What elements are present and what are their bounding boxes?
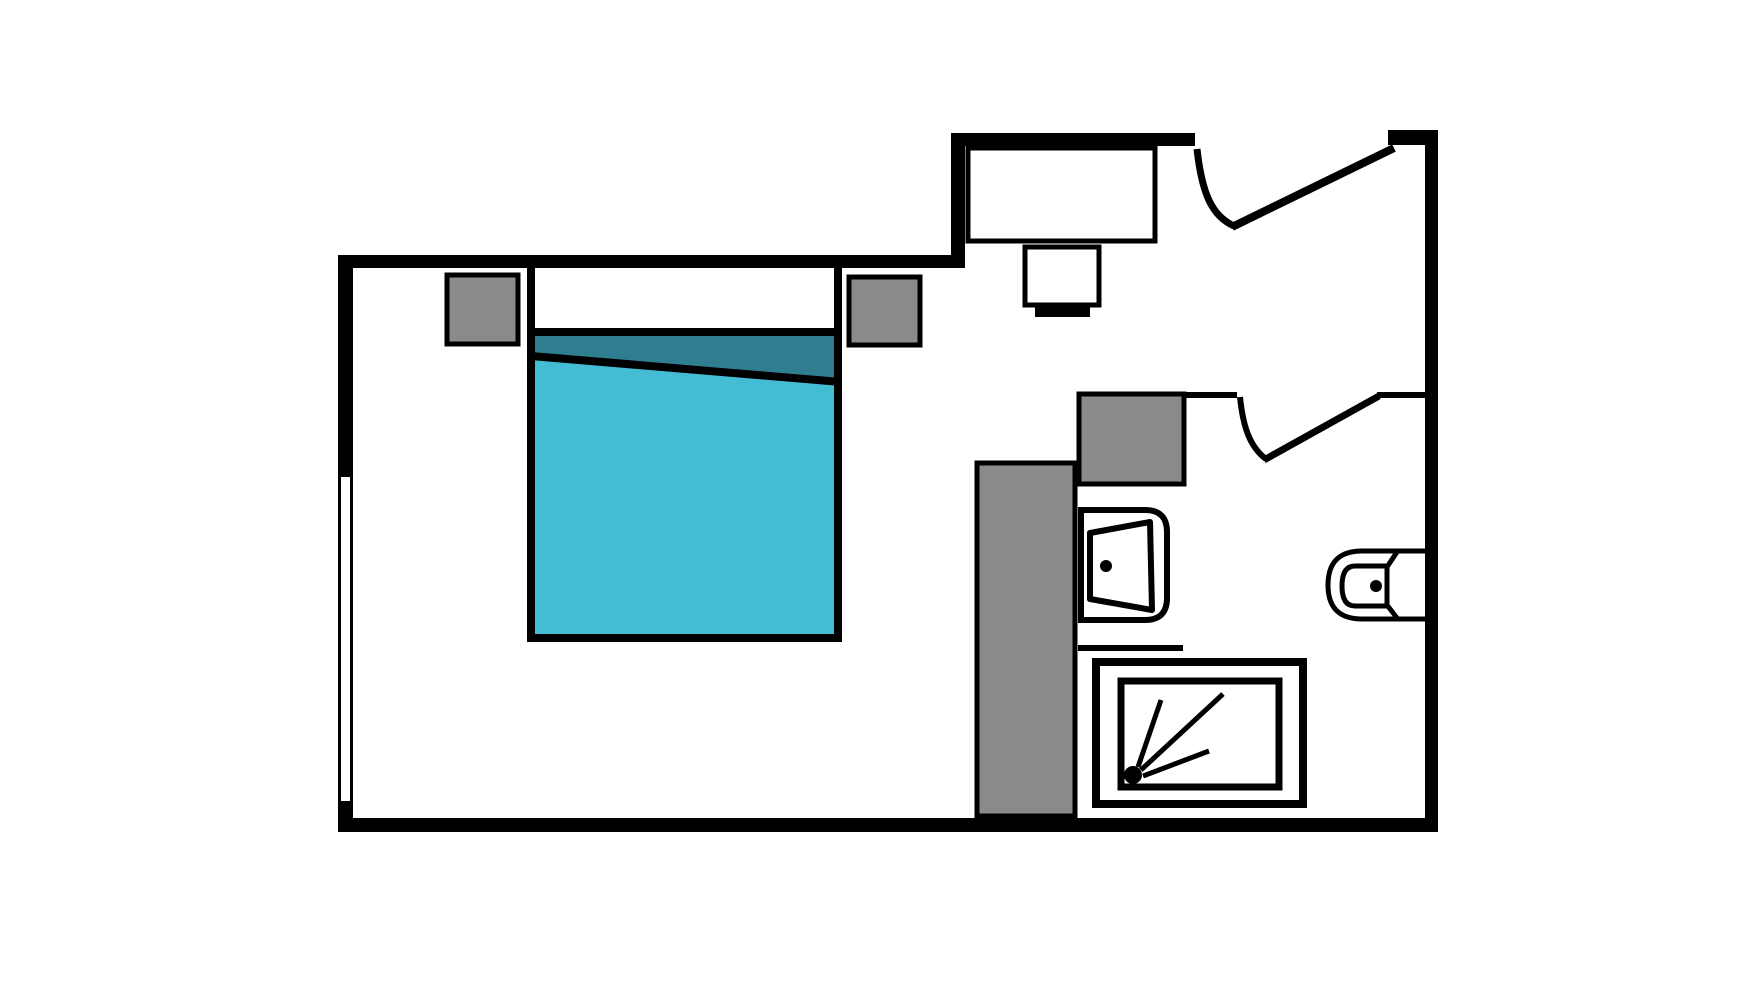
desk-chair-base <box>1035 307 1090 317</box>
floor-plan-svg <box>0 0 1760 990</box>
wall-right <box>1425 130 1438 832</box>
window-left-wall <box>341 477 350 801</box>
bathroom-door-leaf <box>1264 396 1379 460</box>
desk <box>968 148 1155 241</box>
desk-chair <box>1025 247 1099 305</box>
wall-nook-left <box>951 133 965 268</box>
nightstand-left <box>447 275 518 344</box>
floor-plan <box>0 0 1760 990</box>
half-wall-shower <box>1078 645 1183 651</box>
toilet-flush-dot <box>1370 580 1382 592</box>
bathroom-partition <box>977 463 1075 816</box>
bed-blanket <box>535 358 838 636</box>
nightstand-right <box>849 277 920 345</box>
bathroom-door-swing-arc <box>1240 397 1266 459</box>
entry-door-swing-arc <box>1197 149 1234 226</box>
sink-drain <box>1100 560 1112 572</box>
wall-bath-entry-right <box>1377 392 1425 398</box>
shower-head-dot <box>1124 766 1142 784</box>
shower-basin <box>1121 681 1279 787</box>
wall-bath-entry-left <box>1185 392 1237 398</box>
wall-nook-top <box>951 133 1195 146</box>
sink-bowl <box>1090 522 1152 610</box>
wall-bottom <box>338 818 1438 832</box>
entry-door-leaf <box>1232 148 1394 227</box>
wall-top-bedroom <box>338 255 965 268</box>
closet-unit <box>1079 394 1184 484</box>
